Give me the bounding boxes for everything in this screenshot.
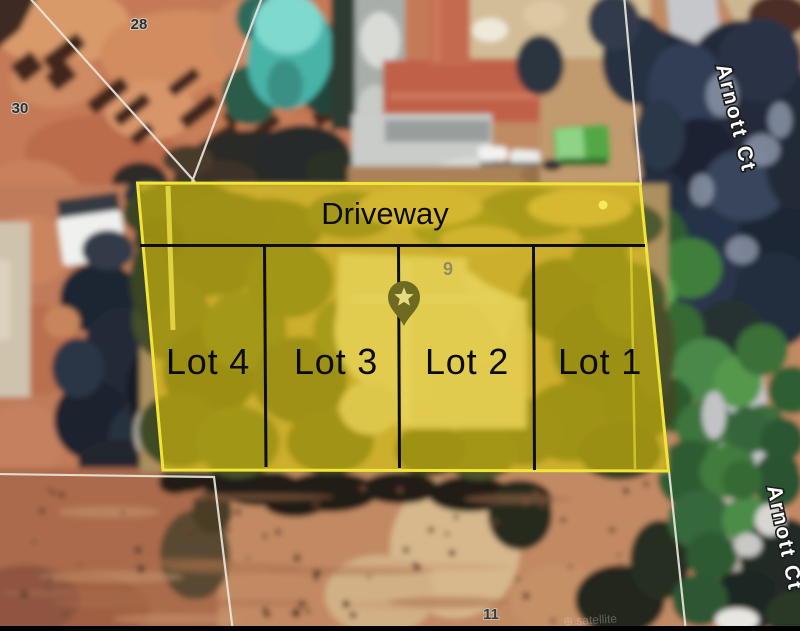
svg-text:Lot 4: Lot 4	[166, 341, 250, 382]
svg-text:Lot 2: Lot 2	[425, 341, 509, 382]
svg-text:Lot 1: Lot 1	[558, 341, 642, 382]
svg-text:⊕ satellite: ⊕ satellite	[563, 612, 618, 626]
svg-text:9: 9	[443, 259, 453, 279]
svg-text:30: 30	[12, 100, 29, 117]
svg-text:11: 11	[483, 606, 499, 623]
svg-text:Lot 3: Lot 3	[294, 341, 378, 382]
svg-text:28: 28	[131, 16, 148, 33]
svg-text:Driveway: Driveway	[321, 196, 449, 231]
